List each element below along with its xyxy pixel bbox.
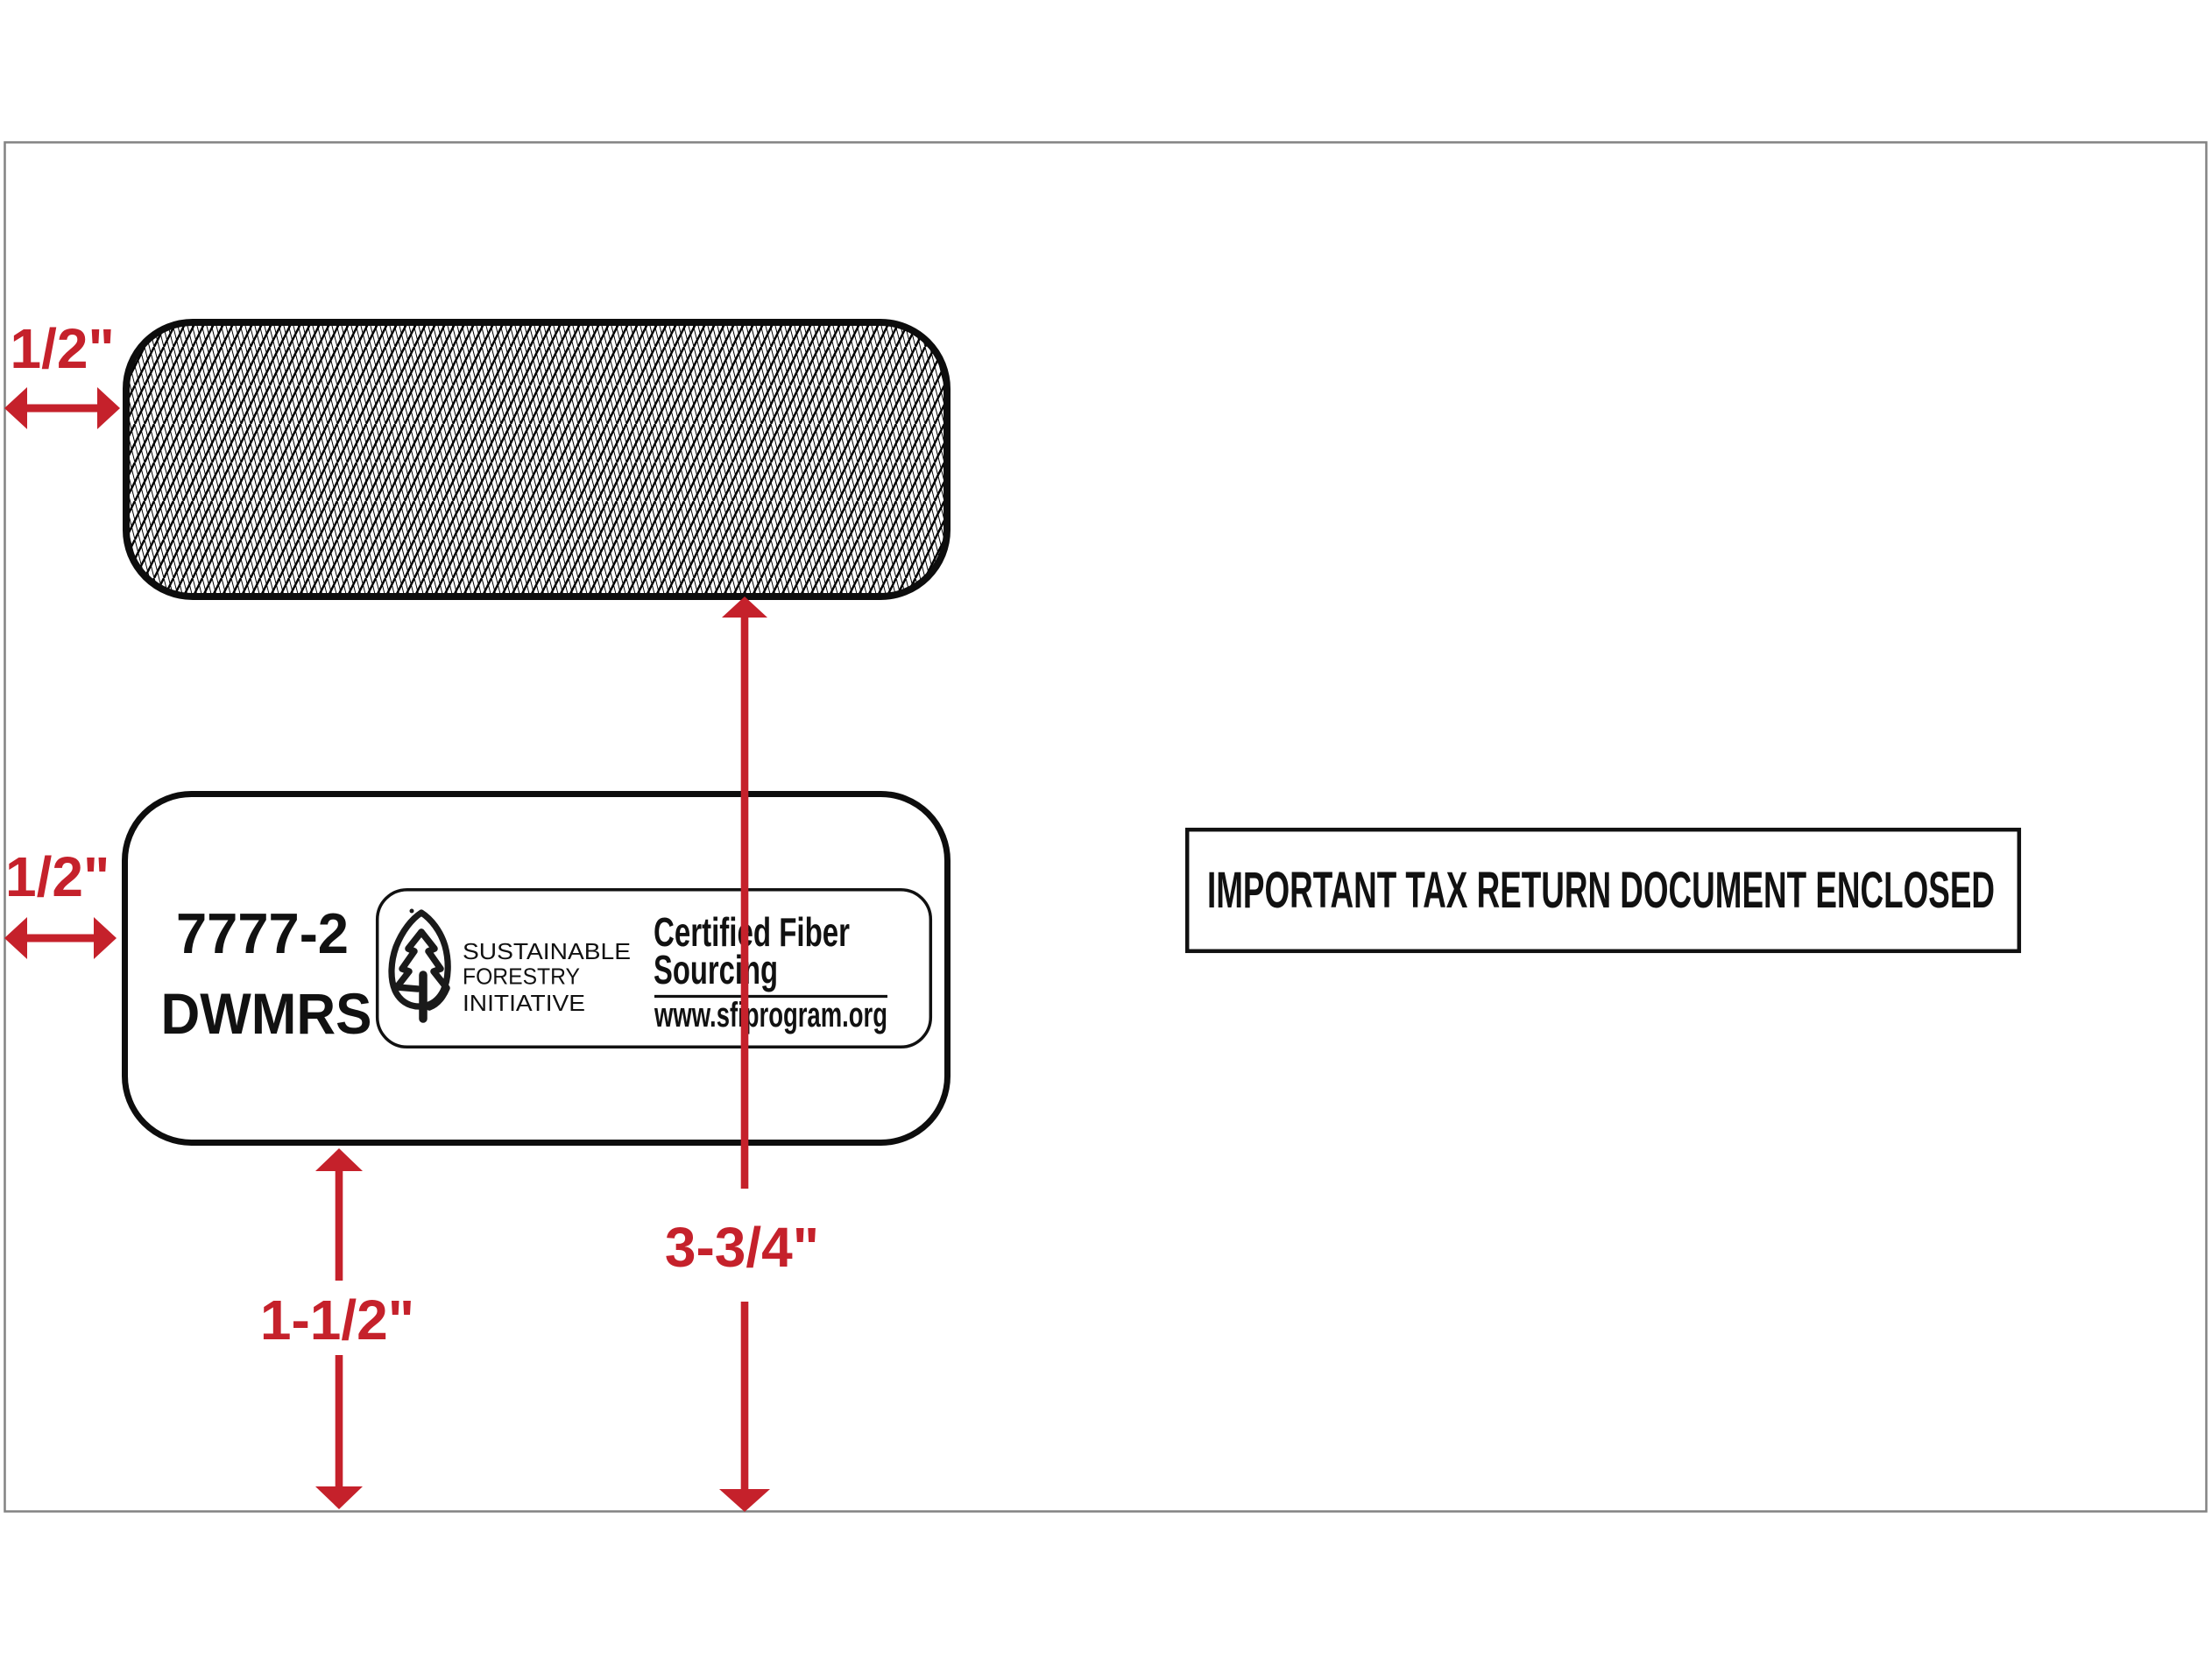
svg-text:1/2": 1/2" [11,317,115,380]
svg-text:1-1/2": 1-1/2" [260,1288,414,1352]
svg-text:DWMRS: DWMRS [161,981,372,1046]
svg-text:SUSTAINABLE: SUSTAINABLE [463,940,631,964]
svg-text:FORESTRY: FORESTRY [463,965,580,990]
svg-text:Sourcing: Sourcing [654,947,778,992]
svg-text:IMPORTANT TAX RETURN DOCUMENT: IMPORTANT TAX RETURN DOCUMENT ENCLOSED [1207,862,1995,919]
svg-text:7777-2: 7777-2 [176,901,349,965]
svg-text:3-3/4": 3-3/4" [665,1216,819,1279]
svg-text:INITIATIVE: INITIATIVE [463,992,585,1016]
svg-text:www.sfiprogram.org: www.sfiprogram.org [654,996,887,1034]
svg-text:1/2": 1/2" [5,845,110,908]
